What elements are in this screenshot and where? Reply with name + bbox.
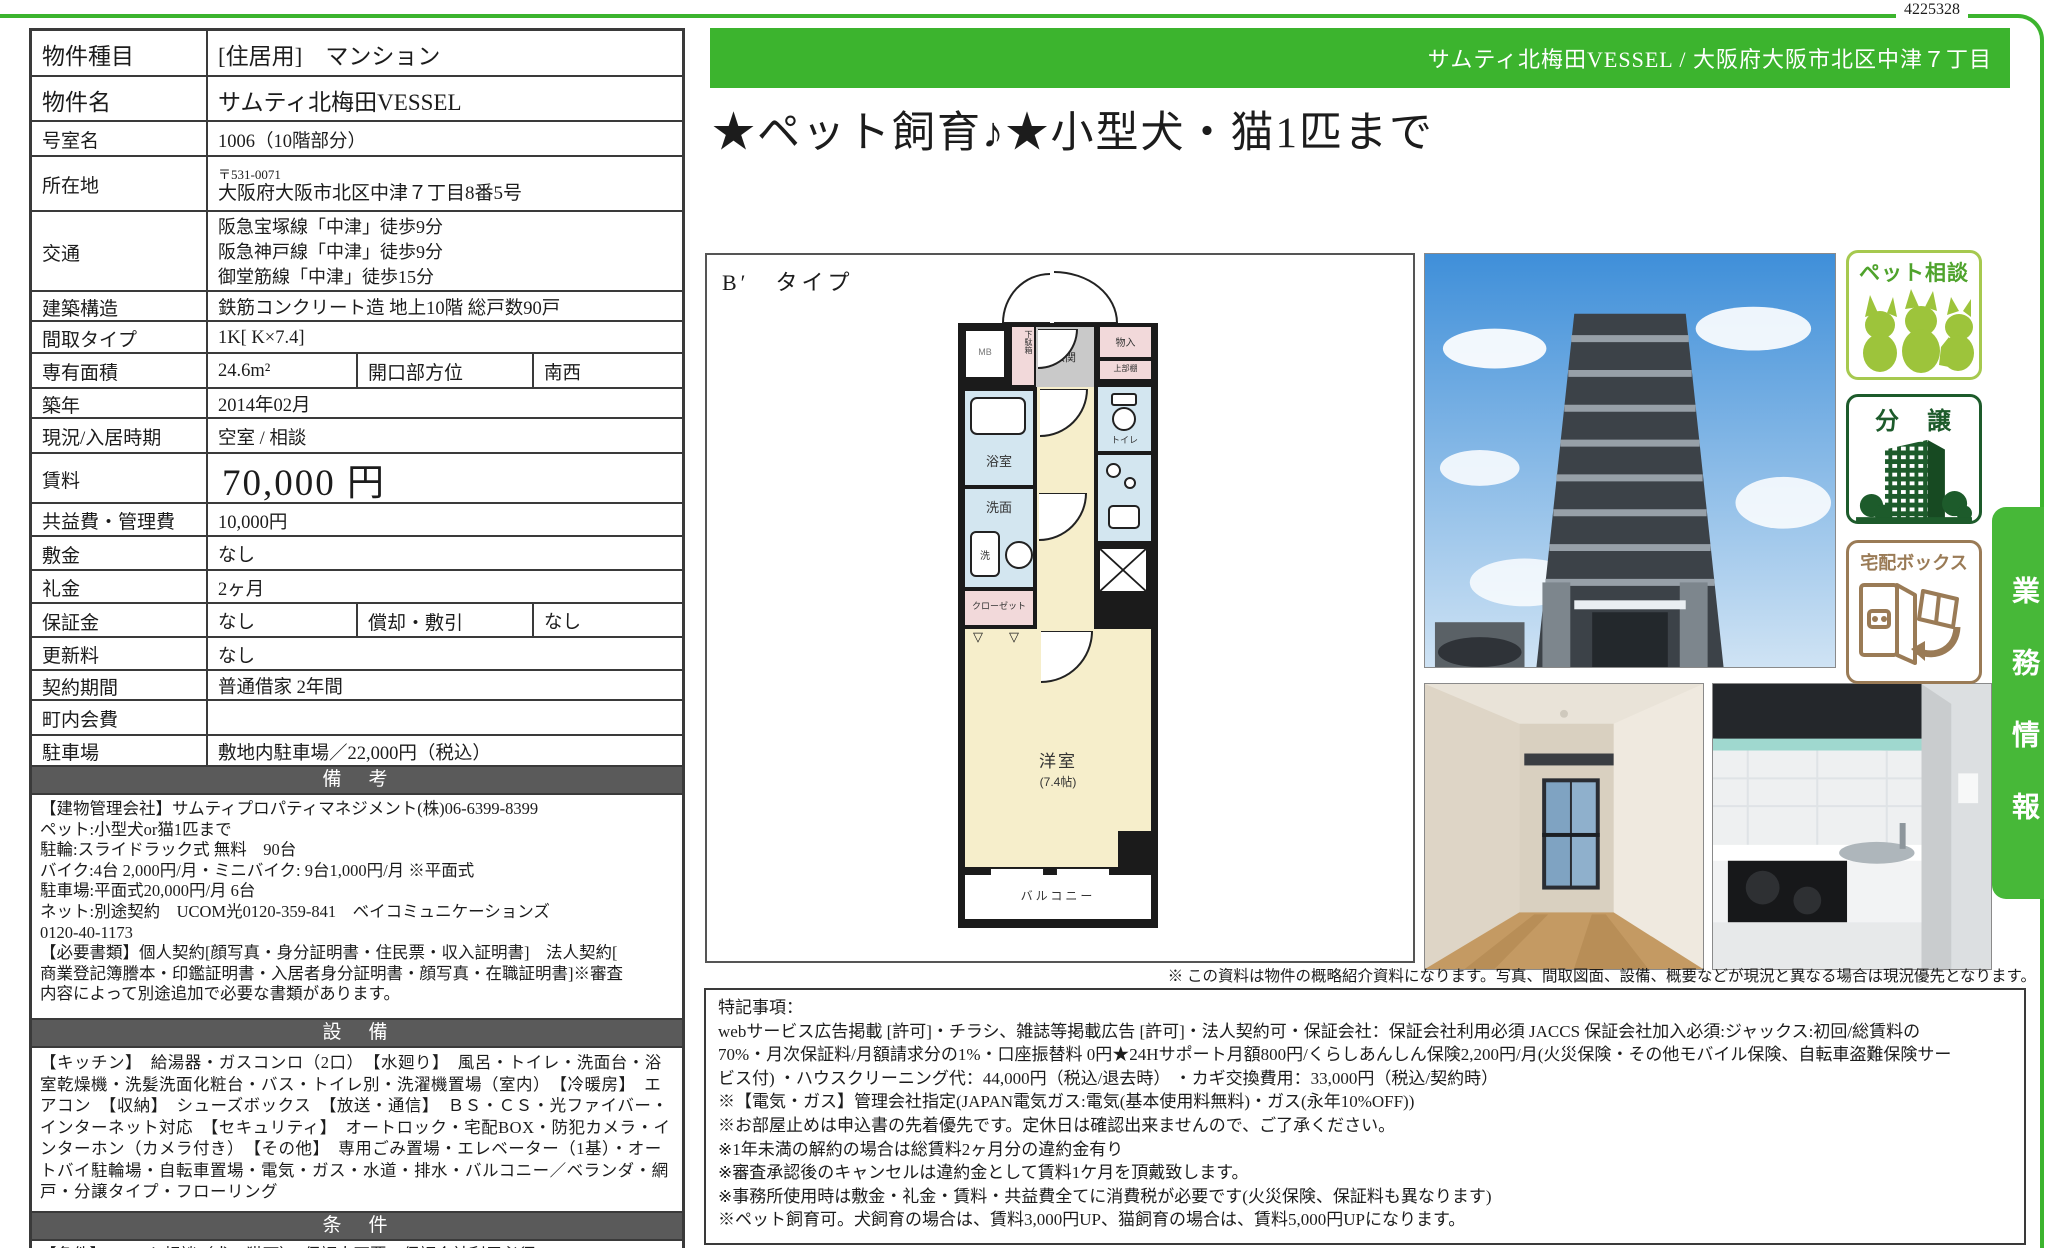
row-label: 所在地 bbox=[32, 157, 208, 210]
row-value: なし bbox=[208, 638, 682, 669]
row-label: 町内会費 bbox=[32, 701, 208, 734]
room-closet: クローゼット bbox=[965, 591, 1033, 625]
row-value bbox=[208, 701, 682, 734]
table-row: 共益費・管理費10,000円 bbox=[32, 504, 682, 537]
badge-label: 分 譲 bbox=[1875, 401, 1953, 436]
row-label: 契約期間 bbox=[32, 671, 208, 699]
table-row: 築年2014年02月 bbox=[32, 389, 682, 419]
row-label: 建築構造 bbox=[32, 292, 208, 320]
row-label: 専有面積 bbox=[32, 354, 208, 387]
table-row: 契約期間普通借家 2年間 bbox=[32, 671, 682, 701]
toilet-bowl-icon bbox=[1112, 407, 1136, 431]
room-photo bbox=[1424, 683, 1704, 970]
room-kitchen bbox=[1098, 455, 1151, 541]
row-value: 鉄筋コンクリート造 地上10階 総戸数90戸 bbox=[208, 292, 682, 320]
row-value: 空室 / 相談 bbox=[208, 419, 682, 452]
equipment-band: 設 備 bbox=[32, 1020, 682, 1048]
row-label: 敷金 bbox=[32, 537, 208, 569]
row-value: サムティ北梅田VESSEL bbox=[208, 77, 682, 120]
building-icon bbox=[1854, 436, 1974, 521]
burner-icon bbox=[1124, 477, 1136, 489]
postal-code: 〒531-0071 bbox=[218, 167, 522, 182]
row-value: 1K[ K×7.4] bbox=[208, 322, 682, 352]
table-row: 町内会費 bbox=[32, 701, 682, 736]
table-row: 建築構造鉄筋コンクリート造 地上10階 総戸数90戸 bbox=[32, 292, 682, 322]
badge-bunjo: 分 譲 bbox=[1846, 394, 1982, 524]
table-row: 現況/入居時期空室 / 相談 bbox=[32, 419, 682, 454]
badge-label: 宅配ボックス bbox=[1860, 549, 1967, 575]
room-balcony: バルコニー bbox=[965, 875, 1151, 919]
row-value-2: なし bbox=[534, 604, 682, 636]
remarks-band: 備 考 bbox=[32, 767, 682, 795]
address: 大阪府大阪市北区中津７丁目8番5号 bbox=[218, 182, 522, 206]
special-notes-box: 特記事項： webサービス広告掲載 [許可]・チラシ、雑誌等掲載広告 [許可]・… bbox=[704, 988, 2026, 1245]
row-value: 24.6m² bbox=[208, 354, 358, 387]
wall-notch bbox=[1118, 831, 1151, 867]
closet-door-marks: ▽▽ bbox=[973, 629, 1045, 645]
row-label: 号室名 bbox=[32, 122, 208, 155]
disclaimer-note: ※ この資料は物件の概略紹介資料になります。写真、間取図面、設備、概要などが現況… bbox=[704, 964, 2036, 986]
floorplan-body: MB 下駄箱 玄関 物入 上部棚 浴室 トイレ bbox=[958, 323, 1158, 928]
room-monoire: 物入 bbox=[1100, 327, 1151, 357]
row-label: 間取タイプ bbox=[32, 322, 208, 352]
building-photo bbox=[1424, 253, 1836, 668]
table-row: 更新料なし bbox=[32, 638, 682, 671]
door-arc-icon bbox=[1054, 271, 1118, 323]
table-row: 駐車場敷地内駐車場／22,000円（税込） bbox=[32, 736, 682, 767]
side-tab-gyomu-joho: 業務情報 bbox=[1992, 507, 2044, 899]
room-mb: MB bbox=[966, 331, 1004, 377]
row-label: 礼金 bbox=[32, 571, 208, 602]
row-value: 10,000円 bbox=[208, 504, 682, 535]
row-label: 保証金 bbox=[32, 604, 208, 636]
shaft-hatch-icon bbox=[1098, 547, 1148, 593]
row-value: 普通借家 2年間 bbox=[208, 671, 682, 699]
row-label: 物件種目 bbox=[32, 31, 208, 75]
table-row: 所在地〒531-0071大阪府大阪市北区中津７丁目8番5号 bbox=[32, 157, 682, 212]
burner-icon bbox=[1106, 463, 1121, 478]
row-value: 阪急宝塚線「中津」徒歩9分 阪急神戸線「中津」徒歩9分 御堂筋線「中津」徒歩15… bbox=[208, 212, 682, 290]
property-table: 物件種目[住居用] マンション 物件名サムティ北梅田VESSEL 号室名1006… bbox=[29, 28, 685, 1248]
row-label-2: 開口部方位 bbox=[358, 354, 534, 387]
row-value: 敷地内駐車場／22,000円（税込） bbox=[208, 736, 682, 765]
badge-takuhai-box: 宅配ボックス bbox=[1846, 540, 1982, 684]
row-value: 2ヶ月 bbox=[208, 571, 682, 602]
table-row: 専有面積24.6m²開口部方位南西 bbox=[32, 354, 682, 389]
row-label: 共益費・管理費 bbox=[32, 504, 208, 535]
table-row: 物件名サムティ北梅田VESSEL bbox=[32, 77, 682, 122]
room-uwadana: 上部棚 bbox=[1100, 361, 1151, 379]
row-value-2: 南西 bbox=[534, 354, 682, 387]
conditions-text: 【条件】 ペット相談（犬・猫可）・保証人不要・保証会社利用必須 bbox=[32, 1241, 682, 1248]
rent-value: 70,000 円 bbox=[208, 454, 682, 502]
table-row: 物件種目[住居用] マンション bbox=[32, 31, 682, 77]
green-header-bar: サムティ北梅田VESSEL / 大阪府大阪市北区中津７丁目 bbox=[710, 28, 2010, 88]
remarks-text: 【建物管理会社】サムティプロパティマネジメント(株)06-6399-8399 ペ… bbox=[32, 795, 682, 1020]
sink-icon bbox=[1108, 505, 1140, 529]
washer-icon: 洗 bbox=[970, 531, 1000, 577]
row-value: 1006（10階部分） bbox=[208, 122, 682, 155]
pet-silhouettes-icon bbox=[1853, 287, 1975, 373]
row-label-2: 償却・敷引 bbox=[358, 604, 534, 636]
delivery-box-icon bbox=[1853, 575, 1975, 675]
row-label: 更新料 bbox=[32, 638, 208, 669]
row-label: 賃料 bbox=[32, 454, 208, 502]
floorplan: MB 下駄箱 玄関 物入 上部棚 浴室 トイレ bbox=[958, 271, 1158, 931]
table-row: 賃料70,000 円 bbox=[32, 454, 682, 504]
table-row: 保証金なし償却・敷引なし bbox=[32, 604, 682, 638]
door-arc-icon bbox=[1002, 273, 1050, 323]
table-row: 敷金なし bbox=[32, 537, 682, 571]
basin-icon bbox=[1005, 541, 1033, 569]
row-label: 駐車場 bbox=[32, 736, 208, 765]
equipment-text: 【キッチン】 給湯器・ガスコンロ（2口） 【水廻り】 風呂・トイレ・洗面台・浴室… bbox=[32, 1048, 682, 1213]
row-label: 物件名 bbox=[32, 77, 208, 120]
table-row: 号室名1006（10階部分） bbox=[32, 122, 682, 157]
table-row: 交通阪急宝塚線「中津」徒歩9分 阪急神戸線「中津」徒歩9分 御堂筋線「中津」徒歩… bbox=[32, 212, 682, 292]
badge-label: ペット相談 bbox=[1859, 257, 1969, 287]
listing-id: 4225328 bbox=[1896, 1, 1968, 19]
floorplan-type-label: B′ タイプ bbox=[722, 265, 854, 297]
row-value: [住居用] マンション bbox=[208, 31, 682, 75]
badge-pet-soudan: ペット相談 bbox=[1846, 250, 1982, 380]
bathtub-icon bbox=[970, 397, 1026, 435]
row-value: 2014年02月 bbox=[208, 389, 682, 417]
row-label: 築年 bbox=[32, 389, 208, 417]
page-title: ★ペット飼育♪★小型犬・猫1匹まで bbox=[712, 98, 1434, 160]
row-value: 〒531-0071大阪府大阪市北区中津７丁目8番5号 bbox=[208, 157, 682, 210]
room-getabako: 下駄箱 bbox=[1012, 327, 1034, 385]
row-value: なし bbox=[208, 537, 682, 569]
toilet-tank-icon bbox=[1111, 393, 1137, 406]
table-row: 礼金2ヶ月 bbox=[32, 571, 682, 604]
kitchen-photo bbox=[1712, 683, 1992, 970]
table-row: 間取タイプ1K[ K×7.4] bbox=[32, 322, 682, 354]
room-bath: 浴室 bbox=[965, 391, 1033, 485]
row-value: なし bbox=[208, 604, 358, 636]
property-sheet: 4225328 物件種目[住居用] マンション 物件名サムティ北梅田VESSEL… bbox=[0, 0, 2056, 1248]
room-senmen: 洗面 洗 bbox=[965, 489, 1033, 587]
row-label: 現況/入居時期 bbox=[32, 419, 208, 452]
room-toilet: トイレ bbox=[1098, 387, 1151, 451]
row-label: 交通 bbox=[32, 212, 208, 290]
conditions-band: 条 件 bbox=[32, 1213, 682, 1241]
